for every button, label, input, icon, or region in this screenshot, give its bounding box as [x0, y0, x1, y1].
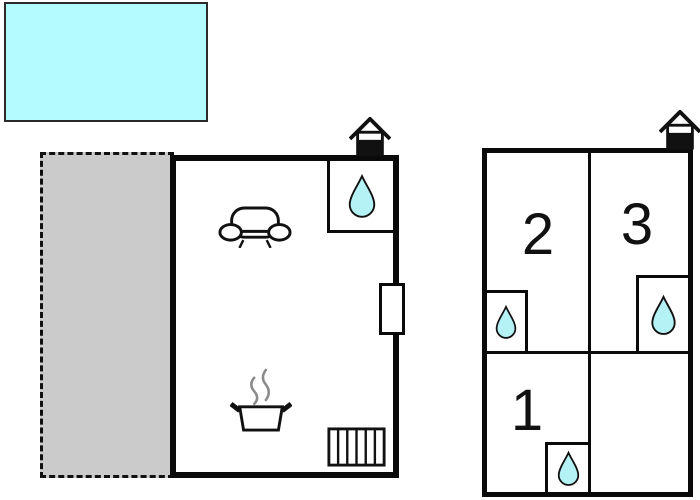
annex-wall-vertical	[588, 153, 591, 492]
room-label-2: 2	[522, 206, 554, 264]
water-drop-icon	[345, 173, 379, 219]
cooking-pot-icon	[230, 368, 292, 432]
sauna-house-icon	[659, 110, 700, 150]
terrace-area	[40, 152, 174, 478]
sofa-icon	[218, 205, 292, 248]
radiator-icon	[326, 427, 387, 467]
room3-bathroom	[636, 275, 688, 351]
room2-bathroom	[487, 290, 528, 351]
water-drop-icon	[648, 294, 679, 336]
annex-unit-outline: 2 3 1	[482, 148, 693, 497]
main-bathroom	[327, 161, 393, 233]
room-label-1: 1	[511, 382, 543, 440]
annex-wall-horizontal	[487, 351, 688, 354]
room-label-3: 3	[621, 196, 653, 254]
main-unit-outline	[170, 155, 399, 478]
room1-bathroom	[545, 442, 588, 492]
water-drop-icon	[555, 450, 582, 487]
floorplan-canvas: 2 3 1	[0, 0, 700, 500]
door-marker	[379, 283, 405, 335]
swimming-pool	[4, 2, 208, 122]
sauna-house-icon	[349, 117, 391, 157]
water-drop-icon	[493, 304, 519, 340]
